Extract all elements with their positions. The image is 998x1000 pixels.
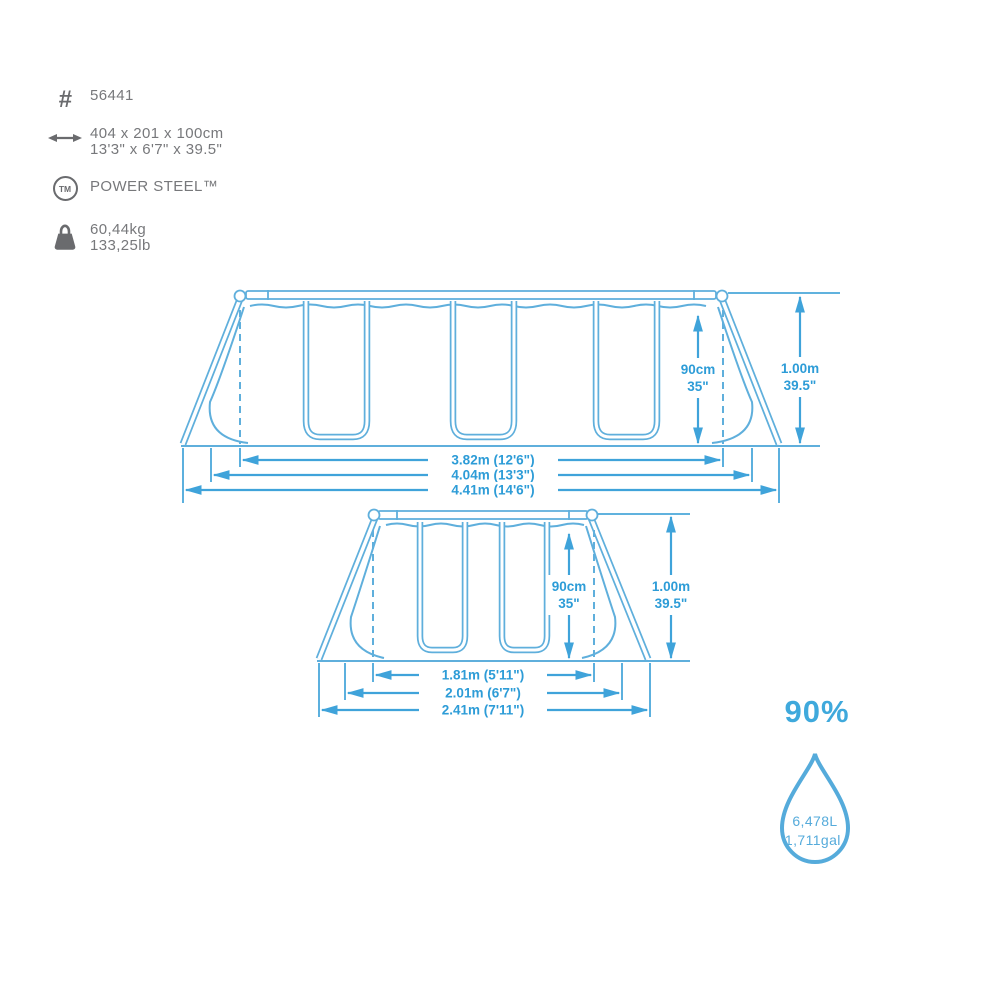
- water-drop-icon: 6,478L 1,711gal.: [775, 746, 859, 874]
- side-length-top: 4.04m (13'3"): [451, 468, 534, 483]
- end-view-diagram: 90cm 35" 1.00m 39.5" 1.81m (5'11") 2.01m…: [317, 510, 699, 718]
- capacity-block: 90% 6,478L 1,711gal.: [757, 694, 877, 730]
- side-length-water: 3.82m (12'6"): [451, 453, 534, 468]
- end-view-frame: [317, 510, 690, 662]
- side-view-dim-lengths: 3.82m (12'6") 4.04m (13'3") 4.41m (14'6"…: [183, 448, 779, 503]
- end-wall-height-metric: 90cm: [552, 579, 587, 594]
- capacity-liters: 6,478L: [792, 813, 837, 829]
- capacity-gallons: 1,711gal.: [785, 832, 845, 848]
- side-view-dim-wall-height: 90cm 35": [674, 316, 722, 443]
- side-view-frame: [181, 290, 820, 446]
- side-frame-height-imperial: 39.5": [784, 378, 817, 393]
- side-view-diagram: 90cm 35" 1.00m 39.5" 3.82m (12'6") 4.04m…: [181, 290, 840, 503]
- end-view-dim-widths: 1.81m (5'11") 2.01m (6'7") 2.41m (7'11"): [319, 663, 650, 718]
- side-frame-height-metric: 1.00m: [781, 361, 819, 376]
- side-length-footprint: 4.41m (14'6"): [451, 483, 534, 498]
- end-width-top: 2.01m (6'7"): [445, 686, 521, 701]
- side-wall-height-imperial: 35": [687, 379, 708, 394]
- end-wall-height-imperial: 35": [558, 596, 579, 611]
- fill-percent-label: 90%: [757, 694, 877, 730]
- end-frame-height-imperial: 39.5": [655, 596, 688, 611]
- end-width-footprint: 2.41m (7'11"): [442, 703, 524, 718]
- product-spec-sheet: { "specs": { "item_number": "56441", "si…: [0, 0, 998, 1000]
- end-width-water: 1.81m (5'11"): [442, 668, 524, 683]
- side-view-dim-frame-height: 1.00m 39.5": [728, 293, 840, 443]
- side-wall-height-metric: 90cm: [681, 362, 716, 377]
- end-frame-height-metric: 1.00m: [652, 579, 690, 594]
- end-view-dim-wall-height: 90cm 35": [546, 534, 592, 658]
